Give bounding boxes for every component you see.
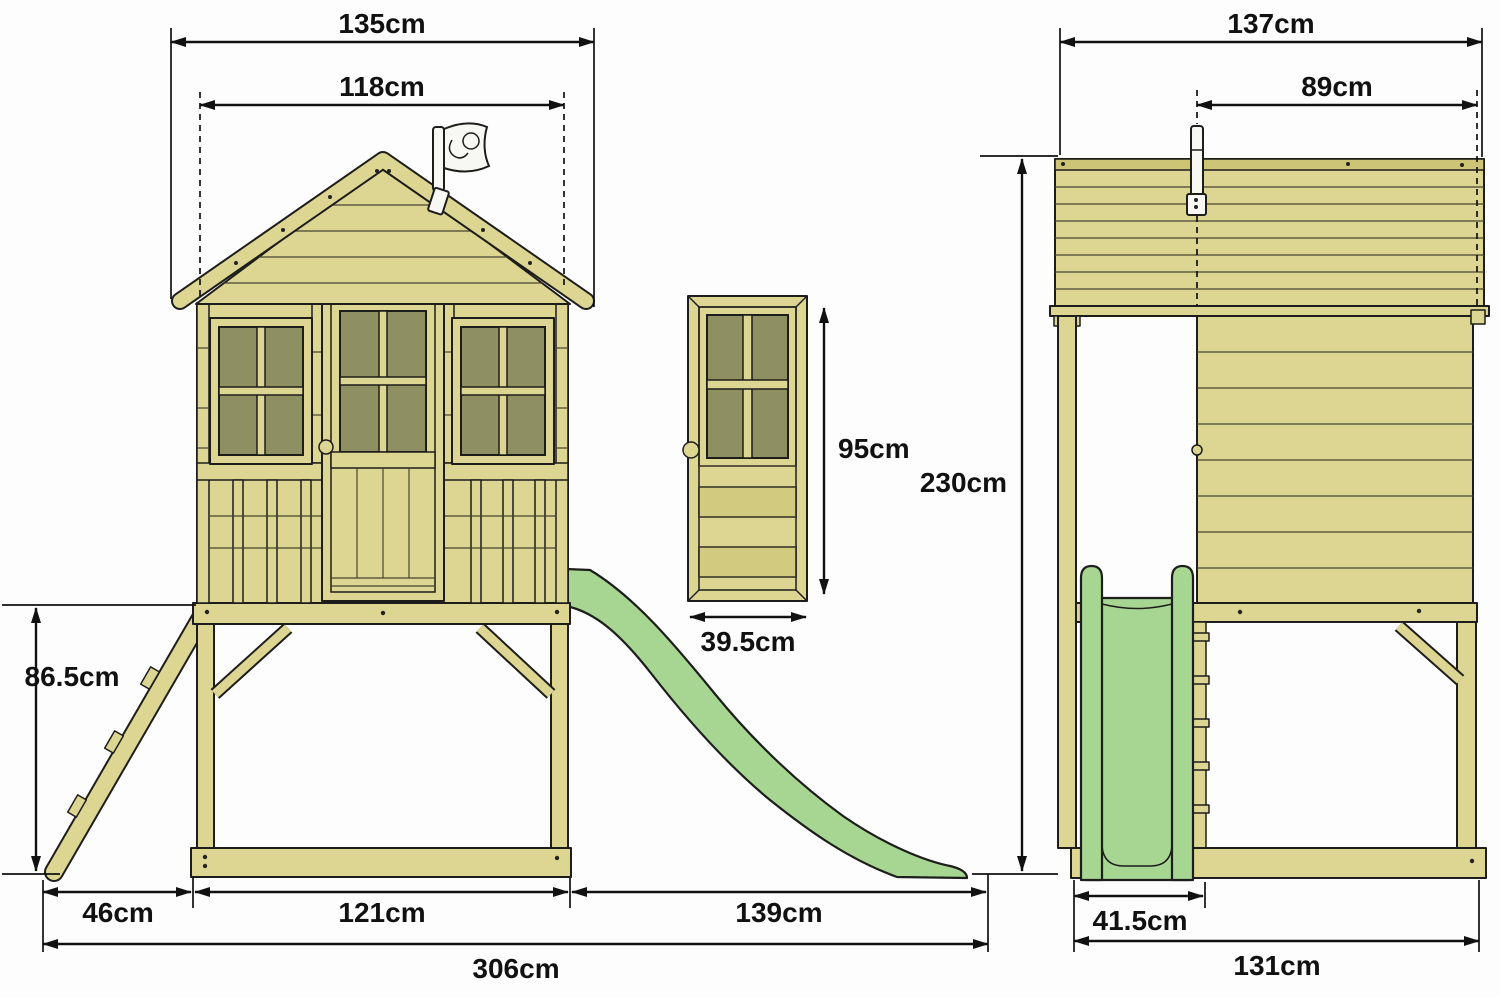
door-detail	[683, 296, 807, 601]
door-height-label: 95cm	[838, 433, 910, 464]
front-door	[319, 293, 444, 601]
door-width-label: 39.5cm	[701, 626, 796, 657]
overall-length-label: 306cm	[472, 953, 559, 984]
base-length-label: 121cm	[338, 897, 425, 928]
diagram-stage: 135cm 118cm 86.5cm 46cm 121cm 139cm 306c…	[0, 0, 1500, 997]
slide-run-length-label: 139cm	[735, 897, 822, 928]
right-window	[452, 318, 554, 464]
left-window	[210, 318, 312, 464]
slide-profile	[566, 569, 967, 878]
door-knob	[319, 440, 333, 454]
door-detail-window	[699, 307, 796, 466]
slide-width-label: 41.5cm	[1093, 905, 1188, 936]
side-base-depth-label: 131cm	[1233, 950, 1320, 981]
side-body-depth-label: 89cm	[1301, 71, 1373, 102]
access-ladder	[54, 618, 201, 872]
ladder-depth-label: 46cm	[82, 897, 154, 928]
eave-board	[1050, 306, 1489, 316]
base-skid	[191, 848, 571, 877]
front-roof-width-label: 135cm	[338, 8, 425, 39]
side-wall	[1192, 310, 1485, 604]
platform-height-label: 86.5cm	[25, 661, 120, 692]
stilt-frame	[191, 624, 571, 877]
front-wall	[197, 286, 568, 603]
overall-height-label: 230cm	[920, 467, 1007, 498]
side-elevation	[1050, 126, 1489, 880]
gable-roof	[180, 160, 586, 304]
front-body-width-label: 118cm	[339, 71, 425, 102]
slide-front	[1081, 566, 1193, 880]
side-roof-depth-label: 137cm	[1227, 8, 1314, 39]
side-roof	[1050, 159, 1489, 316]
front-elevation	[54, 123, 967, 878]
door-detail-knob	[683, 442, 699, 458]
tp-flag-icon	[428, 123, 489, 215]
playhouse-dimension-diagram: 135cm 118cm 86.5cm 46cm 121cm 139cm 306c…	[0, 0, 1500, 997]
